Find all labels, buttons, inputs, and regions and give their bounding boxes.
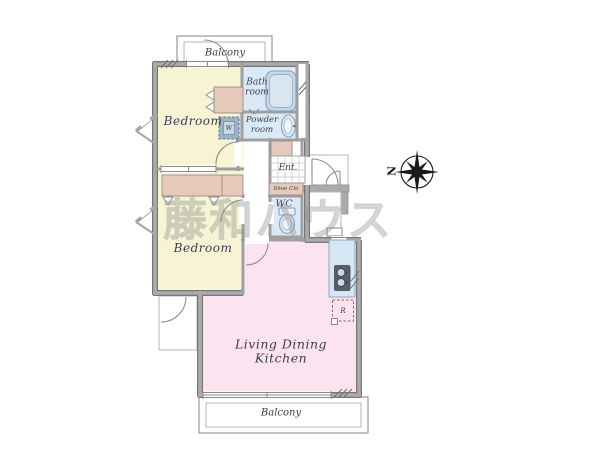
label-refrigerator: R xyxy=(340,307,345,315)
closet-hall xyxy=(271,141,292,156)
closet-bedroom-mid-left xyxy=(162,175,222,196)
sink-icon xyxy=(282,115,296,137)
label-shoe-closet: Shoe Clo xyxy=(274,186,299,192)
bathtub-icon xyxy=(266,71,296,111)
pipe-space xyxy=(299,64,306,138)
label-ldk: Living DiningKitchen xyxy=(235,338,327,367)
closet-bedroom-mid-right xyxy=(222,175,243,196)
compass-north-label: N xyxy=(386,166,399,176)
label-balcony-bottom: Balcony xyxy=(261,408,301,419)
stove-icon xyxy=(335,266,351,291)
label-balcony-top: Balcony xyxy=(205,48,245,59)
label-bath-room: Bathroom xyxy=(245,78,269,99)
window-top-balcony xyxy=(187,60,229,68)
closet-bedroom-top xyxy=(214,87,243,113)
compass-icon xyxy=(395,150,439,194)
sliding-partition-bedrooms xyxy=(161,165,216,173)
kitchen-counter xyxy=(329,240,355,297)
label-entrance: Ent. xyxy=(279,163,298,173)
label-bedroom-mid: Bedroom xyxy=(174,241,233,255)
door-gap-bedroom-top xyxy=(234,142,242,166)
label-wc: WC xyxy=(275,199,292,210)
label-powder-room: Powderroom xyxy=(246,116,278,136)
label-washer: W xyxy=(226,124,233,132)
floor-plan: 藤和ハウス Balcony Bedroom Bathroom Powderroo… xyxy=(0,0,600,450)
label-bedroom-top: Bedroom xyxy=(164,114,223,128)
service-alcove xyxy=(159,296,197,350)
window-ldk-balcony xyxy=(203,391,331,399)
